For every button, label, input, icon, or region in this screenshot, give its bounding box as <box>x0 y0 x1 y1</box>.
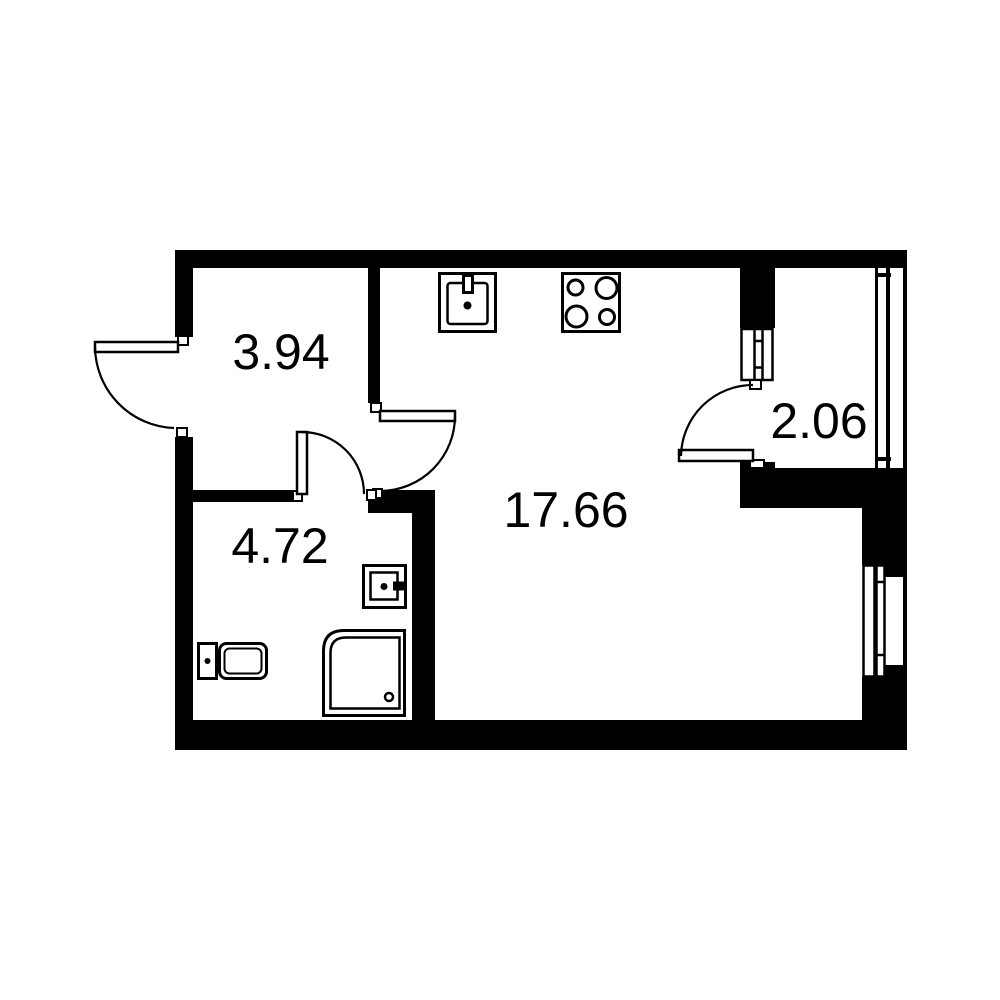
shower-cabin-icon <box>324 631 405 716</box>
wall-bottom <box>175 720 905 750</box>
floor-plan: 3.94 17.66 4.72 2.06 <box>0 0 1000 1000</box>
bathroom-sink-faucet <box>393 582 407 591</box>
bathroom-sink-drain <box>381 583 388 590</box>
entrance-door-arc <box>95 347 174 428</box>
wall-right-lintel-bottom <box>885 665 903 677</box>
living-door-leaf <box>380 411 455 421</box>
window-frame-strip-1 <box>864 566 875 677</box>
partition-window-frame <box>742 329 773 380</box>
stove-burner-bottom-right <box>600 310 615 325</box>
wall-right-outer-line <box>903 250 907 750</box>
bathroom-door <box>297 432 364 494</box>
bathroom-door-leaf <box>297 432 307 494</box>
room-label-hallway: 3.94 <box>232 327 329 377</box>
bath-door-jamb-right <box>367 490 376 500</box>
stove-burner-bottom-left <box>566 306 587 327</box>
wall-bath-top <box>193 490 293 502</box>
bathroom-door-arc <box>302 432 364 494</box>
floor-plan-drawing <box>0 0 1000 1000</box>
wall-hall-divider <box>368 268 380 403</box>
room-label-living-kitchen: 17.66 <box>503 485 628 535</box>
kitchen-sink-drain <box>464 302 472 310</box>
toilet-bowl-inner <box>225 649 262 674</box>
balcony-partition-window <box>742 329 773 380</box>
wall-top <box>175 250 907 268</box>
wall-left-lower <box>175 437 193 750</box>
balcony-door-arc <box>681 385 753 456</box>
entrance-door-leaf <box>95 342 178 352</box>
balcony-door <box>679 385 753 461</box>
wall-under-balcony <box>740 468 903 508</box>
toilet-tank-button <box>205 658 211 664</box>
wall-right-lintel-top <box>885 565 903 577</box>
stove-burner-top-right <box>596 278 617 299</box>
wall-right-upper <box>862 508 903 565</box>
entrance-jamb-bottom <box>177 428 187 437</box>
entrance-jamb-top <box>178 336 188 345</box>
bathroom-sink-icon <box>364 566 408 608</box>
balcony-glazing <box>875 268 891 468</box>
wall-balcony-partition-top <box>740 268 775 328</box>
living-room-door <box>380 411 455 491</box>
kitchen-sink-faucet <box>464 276 473 293</box>
entrance-door <box>95 342 178 428</box>
living-room-window <box>864 566 885 677</box>
room-label-bathroom: 4.72 <box>231 521 328 571</box>
toilet-icon <box>199 644 267 679</box>
stove-icon <box>563 274 620 332</box>
kitchen-sink-icon <box>440 274 496 332</box>
balcony-door-leaf <box>679 450 753 461</box>
living-door-arc <box>381 416 455 491</box>
wall-left-upper <box>175 250 193 337</box>
room-label-balcony: 2.06 <box>770 396 867 446</box>
stove-burner-top-left <box>568 280 583 295</box>
wall-right-lower <box>862 677 903 720</box>
wall-bath-right <box>412 513 435 720</box>
shower-drain <box>385 693 393 701</box>
